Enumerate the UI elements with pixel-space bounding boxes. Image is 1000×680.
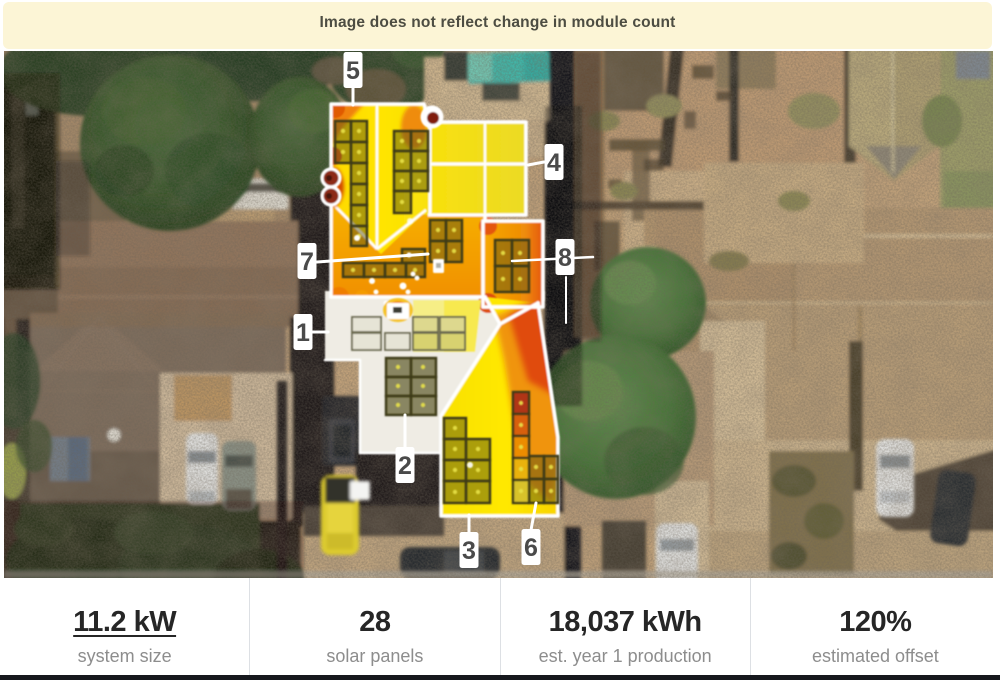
svg-text:3: 3 — [462, 537, 476, 565]
svg-text:4: 4 — [547, 149, 561, 177]
svg-text:1: 1 — [296, 319, 310, 347]
svg-text:2: 2 — [398, 452, 412, 480]
svg-text:5: 5 — [346, 57, 360, 85]
svg-text:8: 8 — [558, 244, 572, 272]
svg-text:7: 7 — [300, 248, 314, 276]
svg-text:6: 6 — [524, 534, 538, 562]
